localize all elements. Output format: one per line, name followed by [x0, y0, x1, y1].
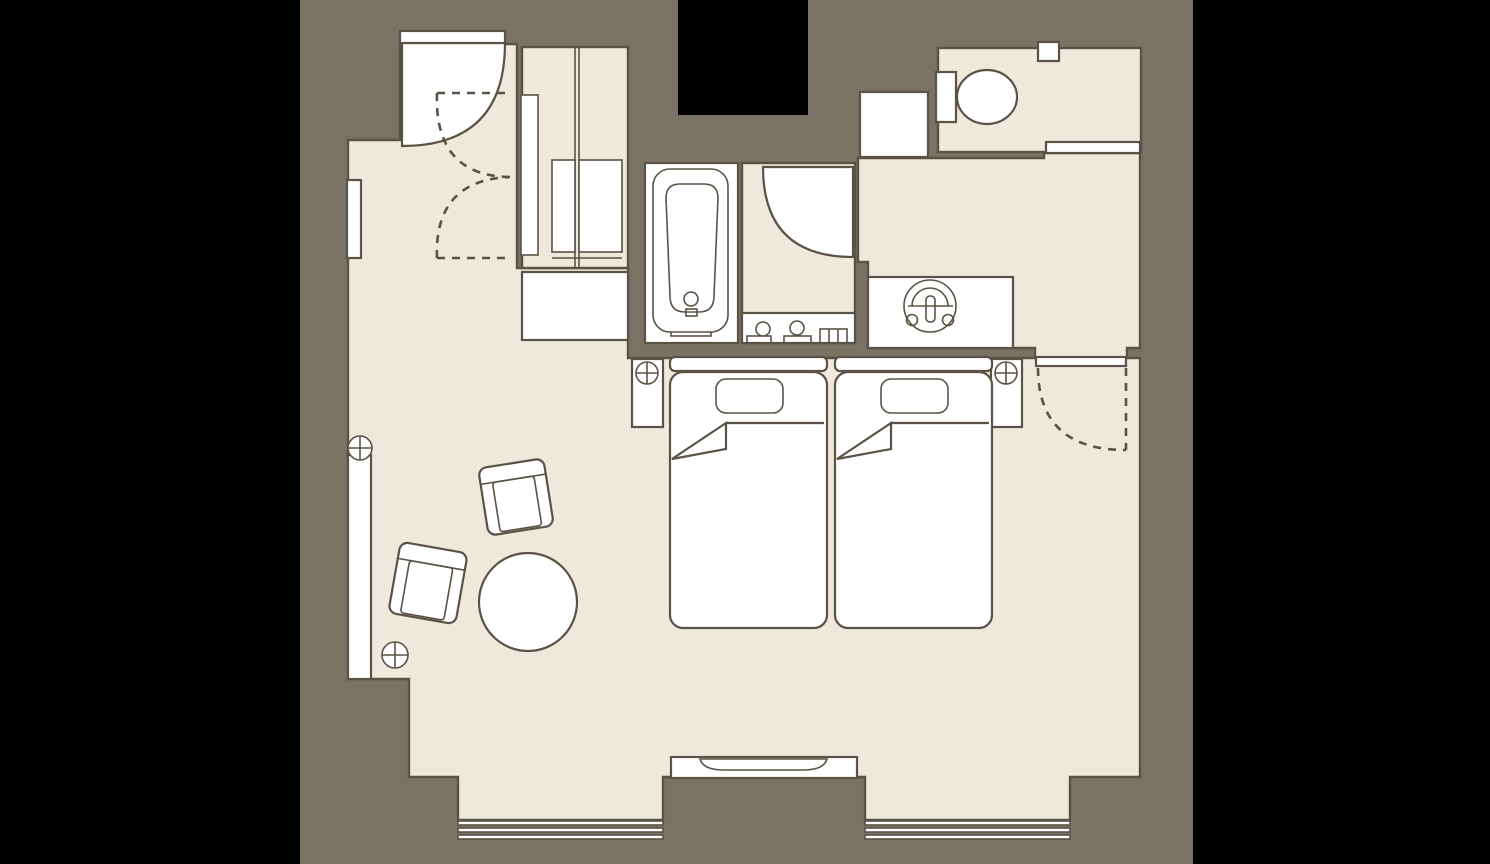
window-right: [865, 821, 1070, 839]
bathroom: [645, 163, 738, 343]
closet: [521, 47, 628, 268]
service-shaft: [860, 92, 928, 157]
table-lamp-icon: [995, 362, 1017, 384]
vanity-counter: [868, 277, 1013, 348]
window-left: [458, 821, 663, 839]
washroom: [742, 163, 855, 343]
bed-right: [835, 357, 992, 628]
luggage-bench: [522, 272, 628, 340]
closet-side-panel: [521, 95, 538, 255]
table-lamp-icon: [636, 362, 658, 384]
bedroom-door-leaf: [1036, 357, 1126, 366]
tv-console: [671, 757, 857, 778]
bed-left: [670, 357, 827, 628]
floor-plan: [0, 0, 1490, 864]
wardrobe-door-left: [552, 160, 575, 252]
floor-plan-canvas: [0, 0, 1490, 864]
pillow: [716, 379, 783, 413]
tv-icon: [700, 759, 827, 770]
wardrobe-door-right: [579, 160, 622, 252]
wall-niche: [347, 180, 361, 258]
toilet-bowl: [957, 70, 1017, 124]
pillow: [881, 379, 948, 413]
plan-cutout-notch: [678, 0, 808, 115]
toilet-room-niche: [1038, 42, 1059, 61]
round-table: [479, 553, 577, 651]
armchair-upper: [478, 458, 554, 535]
nightstand-right: [991, 359, 1022, 427]
armchair-lower: [388, 542, 467, 625]
headboard: [835, 357, 992, 371]
toilet-icon: [936, 70, 1017, 124]
floor-lamp-icon: [348, 436, 372, 460]
bathtub-icon: [653, 169, 728, 332]
toilet-room: [936, 42, 1141, 153]
entrance-door-leaf: [400, 31, 505, 43]
floor-lamp-icon: [382, 642, 408, 668]
toilet-tank: [936, 72, 956, 122]
toilet-sliding-door: [1046, 142, 1140, 153]
nightstand-left: [632, 359, 663, 427]
headboard: [670, 357, 827, 371]
